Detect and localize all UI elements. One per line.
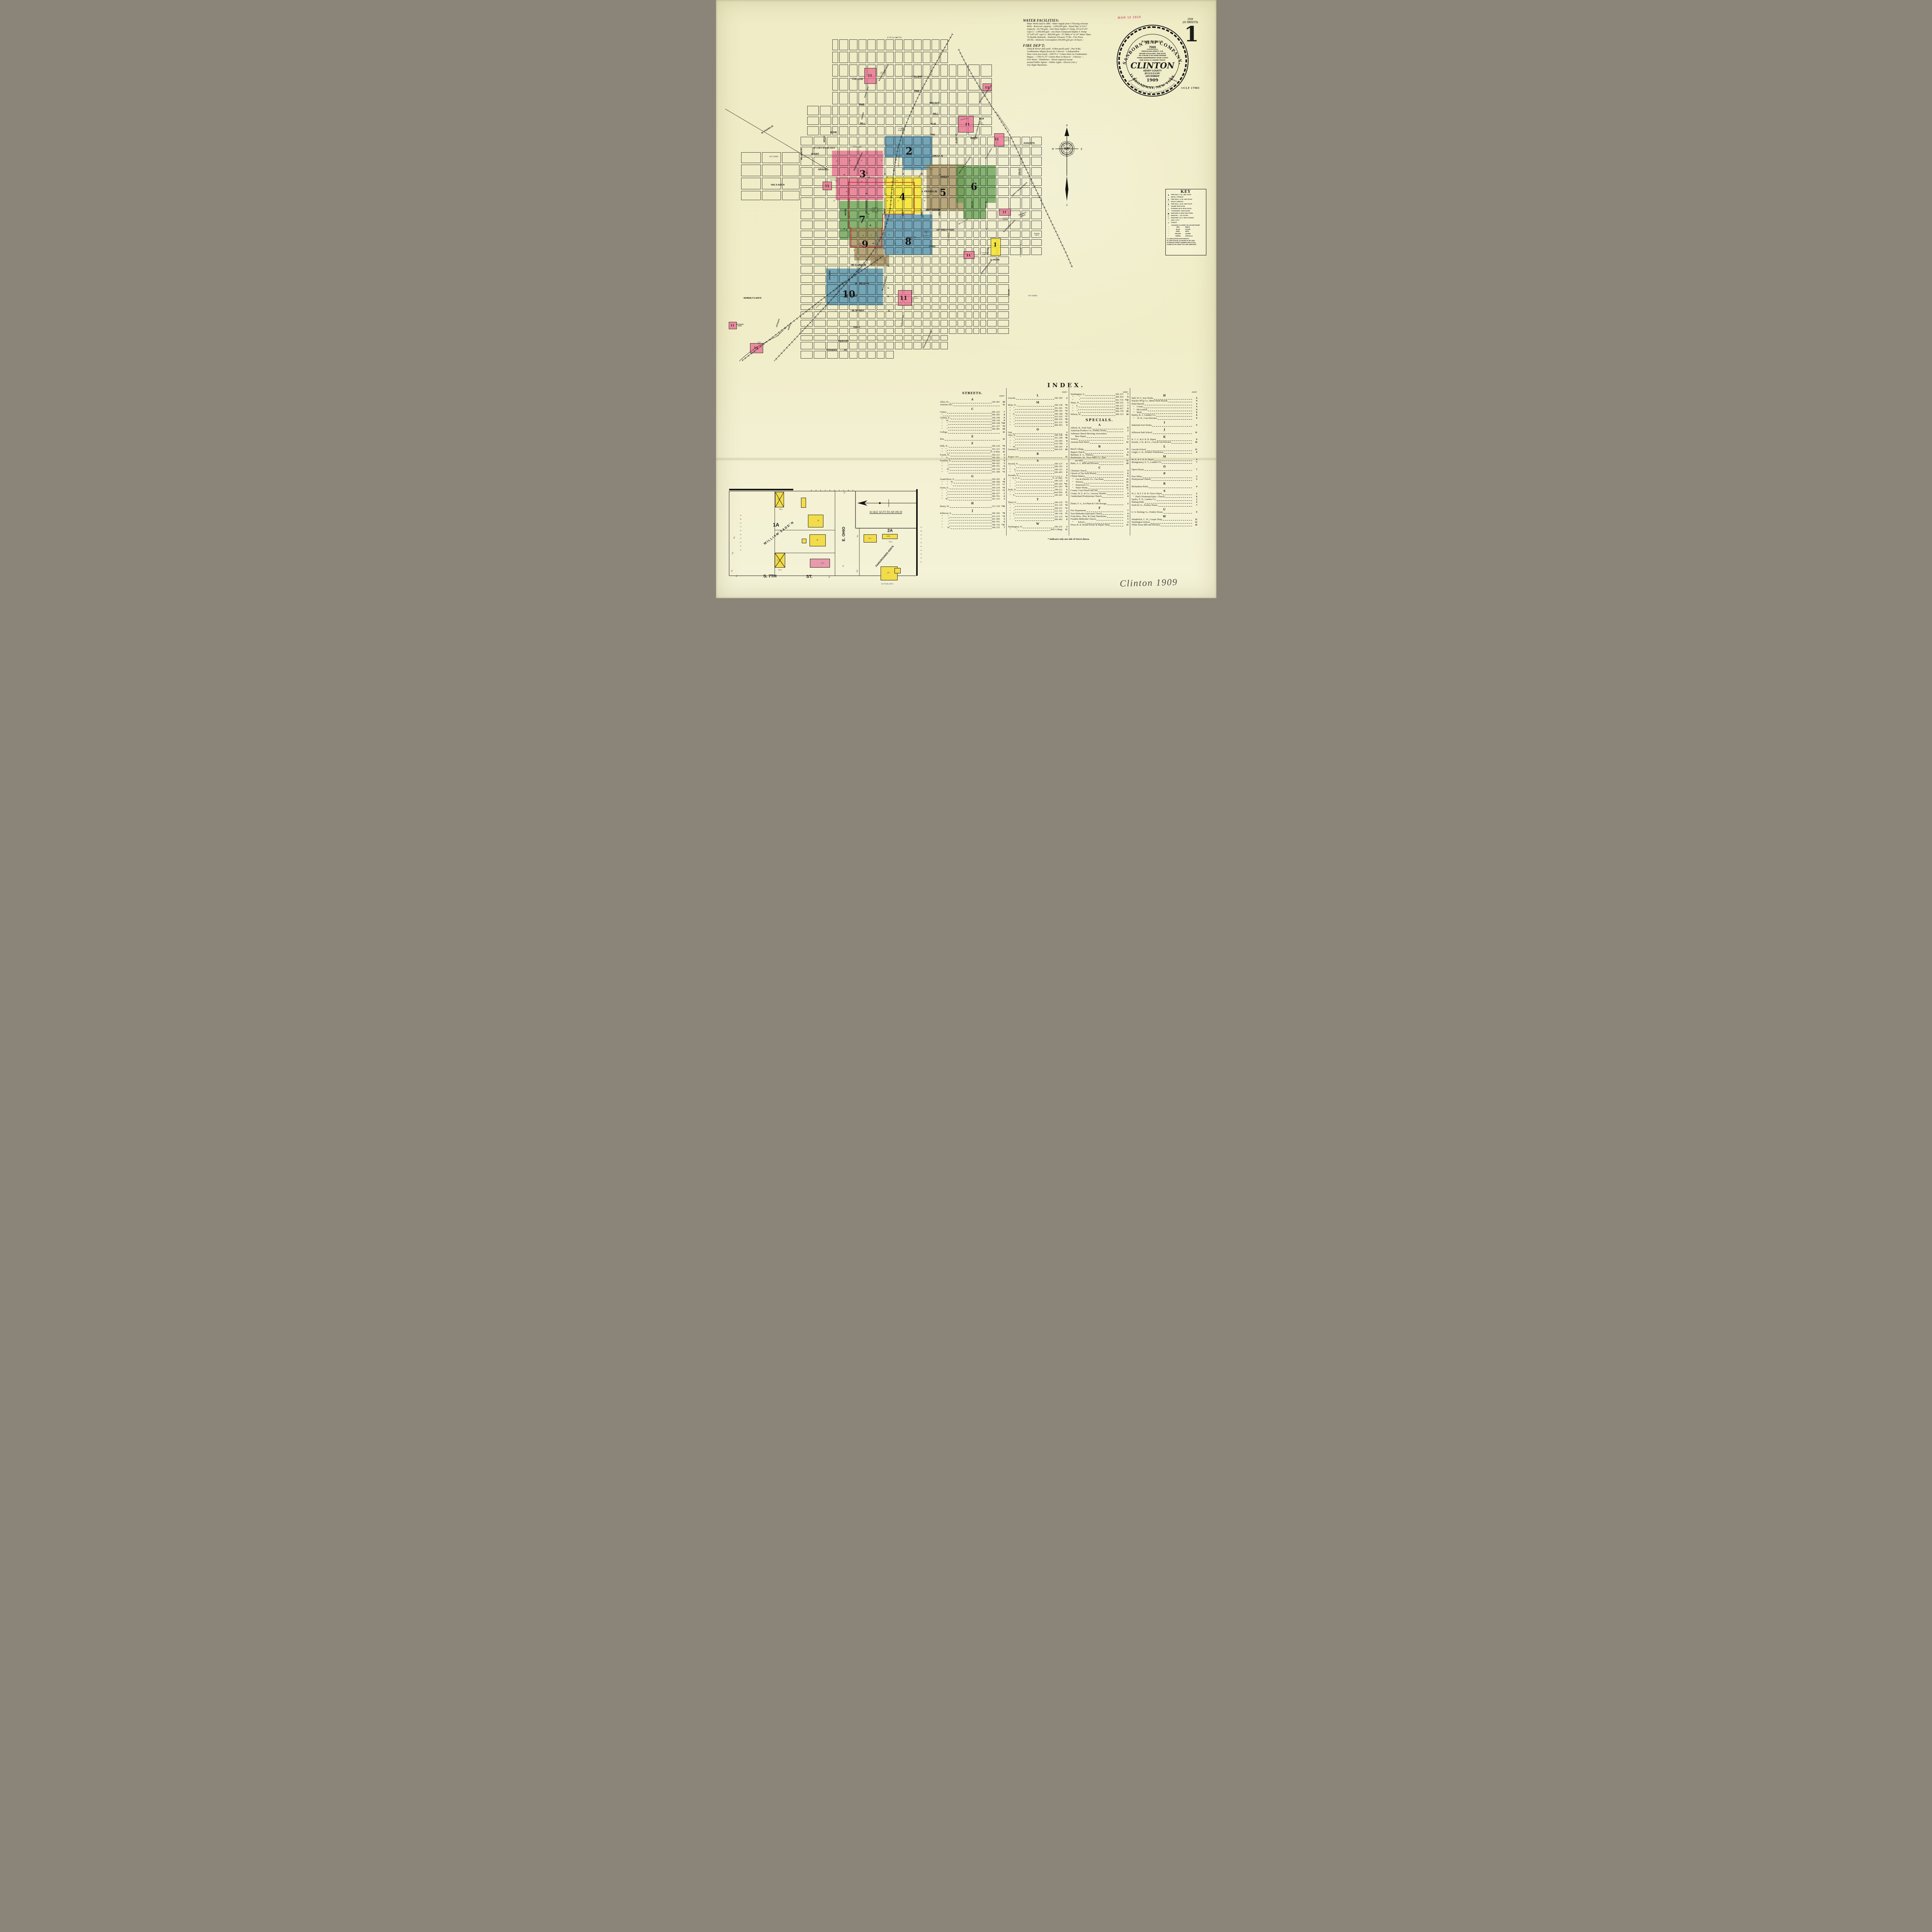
map-block <box>932 231 939 238</box>
inset-label: E. OHIO <box>842 527 846 541</box>
index-entry: Clinton, E.,100–1099 <box>940 417 1005 420</box>
index-entry-sheet: 3 <box>1000 498 1005 501</box>
map-block <box>913 126 922 136</box>
index-entry-range: 100–231 <box>1054 526 1063 529</box>
index-entry: Grand River, E.,100–3038 <box>940 478 1005 481</box>
index-entry-range: 100–140 <box>1054 413 1063 416</box>
index-leader <box>1158 419 1192 420</box>
map-block <box>1022 167 1030 177</box>
map-block <box>814 284 826 295</box>
index-entry-range: 100–237 <box>1116 393 1124 396</box>
map-block <box>814 320 826 327</box>
index-leader <box>1080 401 1115 401</box>
index-letter-header: C <box>940 407 1005 411</box>
map-block <box>877 187 884 196</box>
index-footnote: * Indicates only one side of Street show… <box>1048 538 1089 541</box>
index-entry-name: ” ” <box>1008 516 1015 519</box>
map-block <box>1010 239 1020 246</box>
map-block <box>849 275 857 283</box>
map-block <box>877 257 884 265</box>
map-block <box>886 197 894 209</box>
map-block <box>973 328 979 334</box>
map-block <box>1022 147 1030 156</box>
index-entry-sheet: 9 <box>1000 414 1005 417</box>
map-block <box>849 117 857 125</box>
map-block <box>814 296 826 303</box>
street-label: HUDSON <box>787 323 791 330</box>
block-number: 16 <box>896 180 898 182</box>
index-entry-name: Fifth, N., <box>940 445 949 448</box>
index-leader <box>1016 496 1054 497</box>
index-entry-range: 300–313 <box>1116 413 1124 416</box>
map-block <box>923 117 930 125</box>
map-block <box>849 197 857 209</box>
index-entry-sheet: 11 <box>1063 529 1068 531</box>
index-entry-name: ” ” <box>1071 408 1078 410</box>
index-entry: ” ”200–4038 <box>1008 471 1068 474</box>
index-leader <box>1097 520 1123 520</box>
index-leader <box>1156 416 1192 417</box>
index-entry: Center,200–2237 <box>940 411 1005 414</box>
street-label: N. <box>939 173 941 175</box>
map-block <box>949 275 956 283</box>
map-block <box>973 178 979 186</box>
map-block <box>980 284 986 295</box>
index-entry: Beer Depot,3 <box>1071 435 1129 438</box>
index-entry-range: 506–701 <box>992 521 1000 524</box>
index-leader <box>1164 513 1192 514</box>
key-item-label: WINDOW — 1ST STORY. <box>1171 215 1189 217</box>
map-block <box>782 178 799 190</box>
map-block <box>859 221 866 230</box>
index-entry-name: Lingle, G. R., Produce Warehouse, <box>1132 451 1164 454</box>
map-block <box>987 221 997 230</box>
block-number: 27 <box>849 216 850 218</box>
map-block <box>923 320 930 327</box>
index-entry-name: ” ” <box>1008 407 1015 410</box>
index-entry-sheet: 8 <box>1124 473 1129 475</box>
street-label: WASHINGTON SCHOOL <box>981 252 989 255</box>
map-block <box>904 211 912 219</box>
index-entry-name: American Produce Co., Poultry House, <box>1071 430 1107 432</box>
index-entry-range: 300–415 <box>1116 396 1124 399</box>
map-block <box>827 320 838 327</box>
index-leader <box>950 507 991 508</box>
map-block <box>923 147 930 156</box>
map-block <box>827 231 838 238</box>
map-block <box>827 304 838 310</box>
map-block <box>973 197 979 209</box>
map-block <box>895 266 903 274</box>
index-entry-range: 200–403 <box>1054 471 1063 474</box>
map-block <box>949 147 956 156</box>
index-entry: ” ”501–715*10 <box>1071 399 1129 402</box>
index-entry: ” ”201–203*6 <box>1008 486 1068 488</box>
map-block <box>932 342 939 350</box>
index-leader <box>1079 440 1123 440</box>
index-letter-header: R <box>1008 452 1068 456</box>
index-entry: Washington School,11 <box>1132 521 1197 524</box>
map-block <box>981 65 992 77</box>
map-block <box>998 311 1009 319</box>
street-label: STAND PIPE <box>757 342 761 344</box>
index-entry-sheet: 9 <box>1192 417 1197 420</box>
index-entry-sheet: 5 <box>1124 518 1129 521</box>
index-entry-sheet: 3 <box>1192 478 1197 481</box>
block-number: 28 <box>849 200 850 202</box>
map-block <box>987 178 997 186</box>
index-leader <box>1018 531 1050 531</box>
inset-label: W.HO. <box>886 536 890 537</box>
map-block <box>1031 178 1042 186</box>
index-entry-sheet: 6 <box>1000 465 1005 468</box>
index-entry: Lincoln School,11 <box>1132 449 1197 451</box>
map-block <box>949 106 956 116</box>
map-block <box>966 239 972 246</box>
map-block <box>801 247 813 255</box>
index-entry-range: 100–300 <box>992 481 1000 484</box>
index-leader <box>1015 518 1054 518</box>
index-entry-name: ” School, <box>1071 521 1085 524</box>
index-entry-sheet: 10 <box>1124 413 1129 416</box>
index-leader <box>1016 482 1054 482</box>
street-label: WATER <box>845 209 847 216</box>
key-item-label: WINDOWS & IRON SHUTTERS. <box>1171 213 1194 214</box>
index-entry-name: ” W., <box>940 498 949 501</box>
inset-label: N O E X P O S U R E <box>920 526 922 563</box>
map-block <box>1031 211 1042 219</box>
map-block <box>980 257 986 265</box>
map-block <box>904 117 912 125</box>
index-entry: Elsner, F. A., Ice Plant & Cold Storage,… <box>1071 503 1129 505</box>
inset-building <box>802 539 806 543</box>
map-block <box>940 239 948 246</box>
map-block <box>886 351 894 359</box>
index-section: INDEX. STREETS.SHEETAAllen, W.,120–40110… <box>938 382 1199 548</box>
index-entry-sheet: *11 <box>1063 483 1068 486</box>
index-entry-sheet: 2 <box>1192 498 1197 501</box>
map-block <box>980 167 986 177</box>
intersection-dot <box>867 246 867 247</box>
map-block <box>886 266 894 274</box>
map-block <box>966 187 972 196</box>
street-label: + <box>869 223 871 227</box>
index-entry: ” ”500–7016 <box>940 465 1005 468</box>
map-block <box>904 275 912 283</box>
map-block <box>1010 231 1020 238</box>
inset-label: 60' <box>842 565 845 567</box>
index-entry-sheet: *10 <box>1000 422 1005 425</box>
index-entry-name: Washington, N., <box>1008 526 1023 529</box>
map-block <box>895 335 903 341</box>
map-block <box>867 351 876 359</box>
map-block <box>949 320 956 327</box>
map-block <box>957 65 967 77</box>
map-block <box>849 126 857 136</box>
map-block <box>814 221 826 230</box>
index-leader <box>1016 488 1054 488</box>
street-label: MAIN <box>884 209 886 214</box>
map-block <box>839 239 848 246</box>
block-number: 19 <box>861 160 862 162</box>
index-entry: ” School,4 <box>1071 521 1129 524</box>
index-entry-name: ” ” <box>1008 507 1015 510</box>
inset-building <box>810 559 830 568</box>
index-entry-range: 100–217 <box>1116 405 1124 408</box>
index-entry-name: Swift & Co., Poultry House, <box>1132 504 1158 507</box>
map-block <box>839 328 848 334</box>
index-entry-name: ” ” <box>940 471 949 474</box>
street-label: BONE <box>830 132 837 134</box>
index-entry-name: ” S., <box>1008 413 1016 416</box>
key-ditto: ” <box>1167 235 1171 238</box>
map-block <box>973 311 979 319</box>
index-leader <box>950 422 992 422</box>
map-block <box>849 239 857 246</box>
index-entry-range: 100–214 <box>992 487 1000 490</box>
index-entry-range: 301–505 <box>992 518 1000 521</box>
index-column-streets-2: SHEETLLincoln,100–3052MMain, N.,100–138*… <box>1008 391 1068 531</box>
index-entry-sheet: 2 <box>1192 493 1197 495</box>
map-block <box>940 52 948 63</box>
index-leader <box>1145 470 1192 471</box>
index-leader <box>1148 411 1192 411</box>
index-entry: ” ”500–7016 <box>940 495 1005 498</box>
map-block <box>923 311 930 319</box>
index-entry-sheet: 3 <box>1124 402 1129 405</box>
map-block <box>886 137 894 146</box>
index-letter-header: F <box>940 442 1005 445</box>
map-block <box>981 126 992 136</box>
index-entry-name: Seventh, N., <box>1008 474 1020 477</box>
index-entry: Haysler M'f'g Co., Metal Wash Boards,9 <box>1132 400 1197 403</box>
index-leader <box>949 526 992 526</box>
index-entry-range: 100–303 <box>992 478 1000 481</box>
map-block <box>973 221 979 230</box>
map-block <box>886 117 894 125</box>
index-entry-range: 100–121 <box>1054 469 1063 471</box>
index-entry-name: Second, N., <box>1008 463 1019 466</box>
street-label: 2ND ST. <box>902 209 905 216</box>
index-entry: ” S.,100–1214 <box>1008 469 1068 471</box>
map-block <box>1031 197 1042 209</box>
map-block <box>827 335 838 341</box>
index-entry-name: ” ” <box>940 463 949 465</box>
index-entry-name: ” ” W., <box>940 481 954 484</box>
index-entry-range: 101–215 <box>992 515 1000 518</box>
index-entry-name: Clinton Bakery, <box>1071 475 1085 478</box>
map-block <box>923 304 930 310</box>
index-entry-name: Orchard, S., <box>1008 449 1019 451</box>
street-label: 4TH ST. <box>939 209 941 216</box>
index-entry-sheet: 6 <box>1000 495 1005 498</box>
map-block <box>801 231 813 238</box>
index-entry-name: ” W., <box>940 420 949 422</box>
inset-label: 705½ <box>779 508 782 510</box>
map-block <box>904 335 912 341</box>
street-label: MC LANE'S SECOND ADD'N <box>813 148 835 150</box>
street-label: 3RD ST. <box>921 209 923 216</box>
map-block <box>827 137 838 146</box>
index-sheet-header: SHEET <box>940 395 1005 397</box>
map-block <box>877 137 884 146</box>
index-letter-header: H <box>940 502 1005 505</box>
street-label: W. FRANKLIN <box>761 125 774 135</box>
street-label: W. ALLEN <box>846 294 858 297</box>
inset-label: Gro. <box>821 562 824 564</box>
map-block <box>940 126 948 136</box>
map-block <box>839 197 848 209</box>
index-entry: ” S.,100–2177 <box>1071 405 1129 408</box>
index-leader <box>1090 486 1123 486</box>
map-block <box>949 257 956 265</box>
index-leader <box>1015 493 1054 494</box>
map-block <box>932 221 939 230</box>
map-block <box>913 335 922 341</box>
map-block <box>998 284 1009 295</box>
index-entry-sheet: 9 <box>1063 446 1068 449</box>
intersection-dot <box>876 310 877 311</box>
index-entry-name: ” ” <box>1008 437 1015 440</box>
inset-building <box>801 498 806 508</box>
index-entry: Hurley, R. J., Lumber Co.,8 <box>1132 414 1197 417</box>
index-entry-name: Franklin Methodist Church, <box>1071 518 1097 521</box>
sheet-marker-number: 11 <box>900 295 907 301</box>
map-block <box>877 342 884 350</box>
map-block <box>849 231 857 238</box>
block-number: 18 <box>881 160 883 161</box>
street-label: ORCHARD <box>829 270 832 280</box>
map-block <box>859 126 866 136</box>
index-leader <box>1015 409 1054 410</box>
map-block <box>949 117 956 125</box>
index-leader <box>1015 506 1054 507</box>
index-entry-sheet: *6 <box>1063 486 1068 488</box>
index-entry: ” ”300–4159 <box>1071 396 1129 399</box>
index-entry-name: Montgomery, E. T., Lumber Co., <box>1132 461 1162 464</box>
street-label: W. <box>866 192 867 194</box>
map-block <box>968 78 980 91</box>
index-letter-header: S <box>1132 489 1197 493</box>
map-block <box>940 147 948 156</box>
map-block <box>886 304 894 310</box>
index-entry-name: ” Shull, <box>1132 412 1142 414</box>
map-block <box>827 239 838 246</box>
index-entry-sheet: 11 <box>1000 438 1005 441</box>
index-entry-sheet: 6 <box>1063 489 1068 492</box>
index-entry-name: ” ” <box>940 524 949 527</box>
map-block <box>814 211 826 219</box>
index-entry: ” ”200–4038 <box>1008 519 1068 521</box>
index-entry-sheet: 7 <box>1124 393 1129 396</box>
key-color-row: ”GREENSPECIALS <box>1167 235 1205 238</box>
index-entry-sheet: *8 <box>1063 437 1068 440</box>
block-number: 10 <box>854 250 855 251</box>
map-block <box>973 211 979 219</box>
block-number: 7 <box>863 250 864 251</box>
index-leader <box>1088 489 1123 489</box>
map-block <box>801 284 813 295</box>
map-block <box>957 137 964 146</box>
index-entry-sheet: 11 <box>1124 448 1129 451</box>
index-leader <box>1099 464 1123 465</box>
inset-label: FAIRGROUNDS ADD'N <box>875 545 895 568</box>
street-label: AUGUSTA <box>1024 143 1035 145</box>
inset-label: 702½ <box>888 541 892 543</box>
street-label: S. <box>921 228 923 230</box>
block-number: 34 <box>886 200 888 202</box>
map-block <box>940 187 948 196</box>
inset-label: S. 7TH <box>763 574 776 579</box>
map-block <box>741 178 761 190</box>
block-number: 23 <box>836 160 838 162</box>
map-block <box>966 275 972 283</box>
index-entry: Church of The Holy Rosary,8 <box>1071 473 1129 475</box>
map-block <box>966 231 972 238</box>
index-letter-header: J <box>940 509 1005 512</box>
index-leader <box>1143 413 1192 414</box>
map-block <box>923 296 930 303</box>
map-block <box>1031 221 1042 230</box>
index-leader <box>952 461 992 462</box>
index-letter-header: O <box>1008 428 1068 431</box>
index-entry: ” ”300–4175 <box>940 493 1005 495</box>
map-block <box>801 311 813 319</box>
map-block <box>932 197 939 209</box>
index-entry-name: ” ” <box>1008 422 1015 424</box>
street-label: MILL <box>860 123 866 126</box>
map-block <box>932 296 939 303</box>
map-block <box>957 328 964 334</box>
index-entry-name: Water, N., <box>1071 402 1080 405</box>
map-block <box>859 197 866 209</box>
index-leader <box>1015 442 1054 442</box>
map-block <box>867 296 876 303</box>
index-entry-name: ” W. H., Corn Elevator, <box>1132 417 1158 420</box>
block-number: 58 <box>924 200 925 202</box>
index-leader <box>950 403 992 403</box>
index-entry-sheet: *2 <box>1000 490 1005 492</box>
map-block <box>801 304 813 310</box>
map-block <box>966 221 972 230</box>
key-item-label: FIRE WALL 12 IN. ABV ROOF. <box>1171 199 1193 201</box>
street-label: MC LANE AV. <box>801 148 803 160</box>
index-letter-header: T <box>1008 498 1068 501</box>
index-entry-name: ” ” <box>1071 410 1078 413</box>
index-entry-sheet: *5 <box>1000 448 1005 451</box>
index-entry: Kracke, J. H., & Co., Corn & Oat Elevato… <box>1132 441 1197 444</box>
map-block <box>904 221 912 230</box>
index-leader <box>1017 448 1054 448</box>
map-block <box>839 157 848 166</box>
map-block <box>913 117 922 125</box>
map-block <box>867 147 876 156</box>
map-block <box>973 147 979 156</box>
map-block <box>895 187 903 196</box>
map-block <box>932 304 939 310</box>
index-leader <box>1151 480 1192 481</box>
map-block <box>801 239 813 246</box>
map-block <box>949 197 956 209</box>
map-block <box>932 52 939 63</box>
index-entry-range: 100–127 <box>1054 463 1063 466</box>
map-block <box>957 106 967 116</box>
index-entry-sheet: 9 <box>1063 424 1068 427</box>
key-item-label: FIRE WALL 18 IN. ABV ROOF. <box>1171 203 1193 205</box>
map-block <box>913 137 922 146</box>
map-block <box>932 335 939 341</box>
map-block <box>886 167 894 177</box>
